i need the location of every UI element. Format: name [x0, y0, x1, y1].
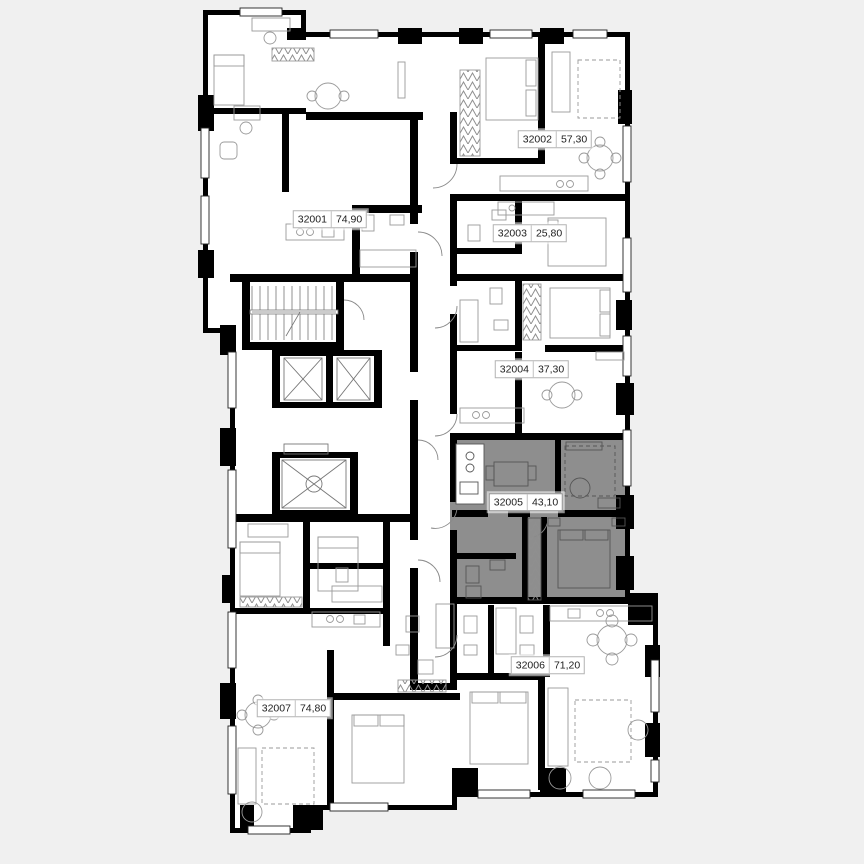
- apartment-number: 32003: [494, 225, 531, 241]
- apartment-number: 32002: [519, 131, 556, 147]
- apartment-number: 32004: [496, 361, 533, 377]
- apartment-label-32002[interactable]: 32002 57,30: [518, 130, 592, 148]
- apartment-area: 74,80: [295, 700, 330, 716]
- floor-plan-canvas: 32001 74,90 32002 57,30 32003 25,80 3200…: [0, 0, 864, 864]
- apartment-label-32001[interactable]: 32001 74,90: [293, 210, 367, 228]
- apartment-area: 71,20: [549, 657, 584, 673]
- apartment-label-32007[interactable]: 32007 74,80: [257, 699, 331, 717]
- apartment-number: 32001: [294, 211, 331, 227]
- apartment-area: 37,30: [533, 361, 568, 377]
- apartment-label-32006[interactable]: 32006 71,20: [511, 656, 585, 674]
- apartment-label-32003[interactable]: 32003 25,80: [493, 224, 567, 242]
- apartment-number: 32005: [490, 494, 527, 510]
- apartment-number: 32007: [258, 700, 295, 716]
- apartment-area: 43,10: [527, 494, 562, 510]
- apartment-area: 57,30: [556, 131, 591, 147]
- apartment-label-32004[interactable]: 32004 37,30: [495, 360, 569, 378]
- apartment-label-32005[interactable]: 32005 43,10: [489, 493, 563, 511]
- floor-plan-drawing: [0, 0, 864, 864]
- apartment-number: 32006: [512, 657, 549, 673]
- apartment-area: 74,90: [331, 211, 366, 227]
- apartment-area: 25,80: [531, 225, 566, 241]
